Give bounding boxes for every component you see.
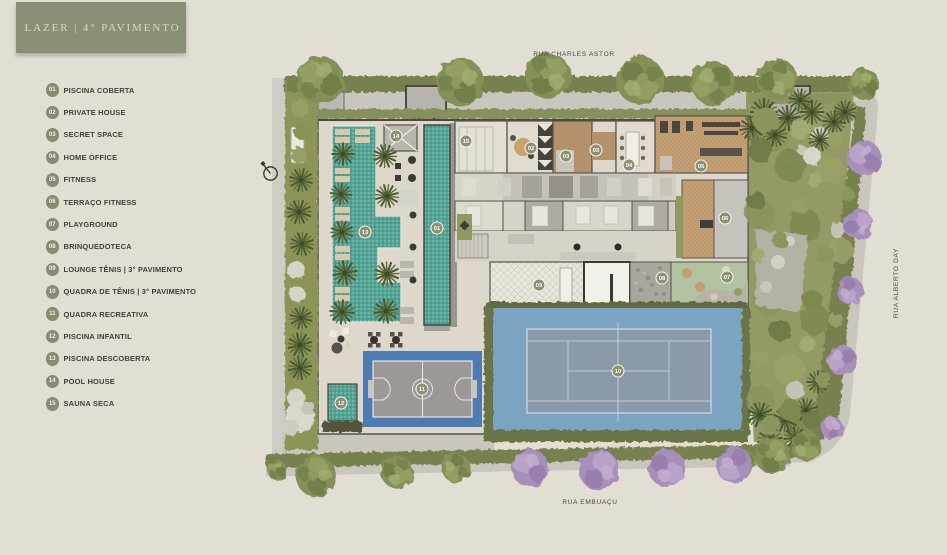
svg-text:10: 10 [615, 369, 621, 375]
svg-text:07: 07 [724, 275, 730, 281]
svg-text:03: 03 [563, 154, 570, 160]
svg-text:14: 14 [393, 134, 400, 140]
svg-text:02: 02 [528, 146, 534, 152]
svg-text:01: 01 [434, 226, 441, 232]
svg-text:11: 11 [419, 387, 426, 393]
svg-text:05: 05 [698, 164, 705, 170]
svg-text:04: 04 [626, 163, 633, 169]
svg-text:08: 08 [659, 276, 666, 282]
svg-text:03: 03 [593, 148, 600, 154]
svg-text:06: 06 [722, 216, 729, 222]
svg-text:RUA CHARLES ASTOR: RUA CHARLES ASTOR [533, 51, 615, 58]
svg-text:RUA EMBUAÇU: RUA EMBUAÇU [562, 499, 617, 506]
svg-text:09: 09 [536, 283, 543, 289]
svg-text:13: 13 [362, 230, 369, 236]
svg-text:RUA ALBERTO DAY: RUA ALBERTO DAY [893, 248, 900, 318]
svg-text:12: 12 [338, 401, 344, 407]
svg-text:15: 15 [463, 139, 470, 145]
